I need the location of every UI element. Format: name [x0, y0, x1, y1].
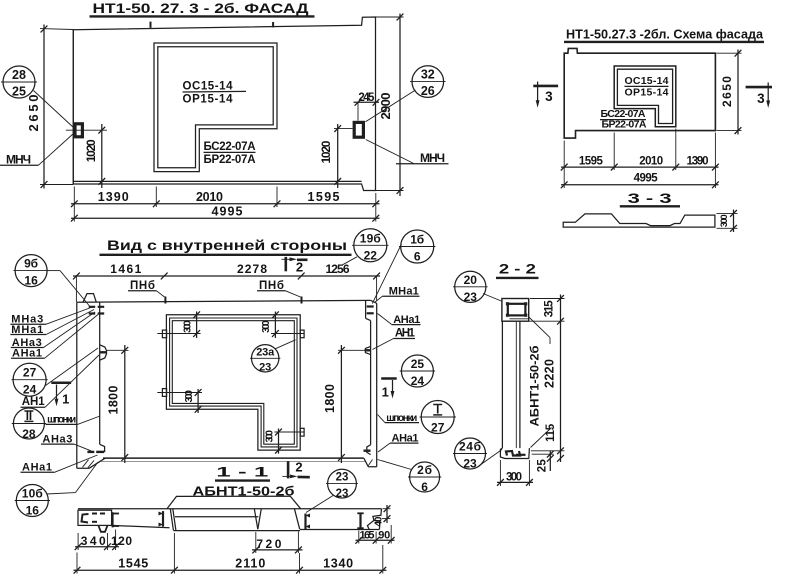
- svg-text:1: 1: [62, 392, 69, 407]
- svg-text:23: 23: [259, 362, 271, 374]
- svg-text:1020: 1020: [319, 140, 333, 163]
- svg-text:115: 115: [545, 423, 557, 442]
- svg-text:720: 720: [256, 537, 281, 551]
- svg-text:23: 23: [464, 290, 478, 304]
- svg-text:1 - 1: 1 - 1: [216, 465, 269, 480]
- svg-text:БР22-07А: БР22-07А: [204, 154, 256, 166]
- svg-text:20: 20: [464, 273, 478, 287]
- svg-text:1340: 1340: [323, 557, 353, 571]
- svg-text:16: 16: [26, 504, 40, 518]
- svg-text:24: 24: [23, 383, 37, 397]
- svg-text:2: 2: [295, 460, 302, 475]
- svg-text:1545: 1545: [118, 557, 148, 571]
- svg-text:300: 300: [184, 390, 195, 403]
- svg-text:2010: 2010: [196, 190, 223, 204]
- svg-text:1б: 1б: [410, 233, 424, 247]
- svg-text:4995: 4995: [634, 173, 659, 185]
- svg-text:23: 23: [463, 457, 477, 471]
- svg-text:АН1: АН1: [22, 396, 46, 408]
- svg-text:АБНТ1-50-2б: АБНТ1-50-2б: [530, 346, 542, 427]
- svg-text:БС22-07А: БС22-07А: [204, 141, 256, 153]
- svg-text:2 - 2: 2 - 2: [499, 262, 536, 277]
- svg-text:25: 25: [411, 357, 425, 371]
- svg-text:2010: 2010: [639, 156, 663, 168]
- svg-text:2278: 2278: [237, 262, 267, 276]
- svg-text:6: 6: [414, 250, 421, 264]
- svg-text:24: 24: [411, 374, 425, 388]
- svg-text:300: 300: [719, 214, 730, 227]
- svg-text:3: 3: [545, 89, 553, 104]
- svg-text:22: 22: [364, 248, 378, 262]
- svg-text:165: 165: [360, 530, 375, 542]
- svg-text:40: 40: [373, 516, 384, 526]
- svg-text:3 - 3: 3 - 3: [628, 190, 672, 206]
- svg-text:9б: 9б: [24, 257, 38, 271]
- svg-text:2650: 2650: [26, 95, 41, 132]
- svg-text:1256: 1256: [326, 262, 350, 276]
- svg-text:25: 25: [12, 85, 26, 99]
- svg-text:1390: 1390: [98, 190, 129, 204]
- svg-text:28: 28: [22, 427, 36, 441]
- svg-text:1390: 1390: [687, 156, 709, 168]
- svg-text:ОС15-14: ОС15-14: [625, 75, 669, 87]
- svg-text:1595: 1595: [579, 156, 604, 168]
- svg-text:4995: 4995: [212, 205, 243, 219]
- svg-text:23: 23: [336, 488, 349, 500]
- svg-text:300: 300: [183, 320, 194, 333]
- svg-text:16: 16: [24, 274, 38, 288]
- svg-text:БР22-07А: БР22-07А: [602, 119, 647, 131]
- svg-text:19б: 19б: [360, 231, 381, 245]
- svg-text:2: 2: [296, 259, 303, 274]
- svg-text:ОР15-14: ОР15-14: [183, 94, 234, 106]
- svg-text:НТ1-50. 27. 3 - 2б. ФАСАД: НТ1-50. 27. 3 - 2б. ФАСАД: [93, 0, 309, 16]
- svg-text:27: 27: [431, 420, 445, 434]
- svg-text:ОС15-14: ОС15-14: [183, 81, 234, 93]
- svg-text:1800: 1800: [323, 384, 337, 413]
- svg-text:25: 25: [537, 459, 549, 473]
- svg-text:1020: 1020: [84, 139, 98, 162]
- svg-text:3: 3: [757, 91, 765, 106]
- svg-text:26: 26: [421, 84, 435, 98]
- svg-text:90: 90: [378, 530, 390, 542]
- svg-text:32: 32: [421, 68, 435, 82]
- svg-text:300: 300: [264, 430, 275, 443]
- svg-text:2220: 2220: [543, 359, 557, 388]
- svg-text:27: 27: [23, 366, 37, 380]
- svg-text:1461: 1461: [110, 262, 141, 276]
- svg-text:1800: 1800: [107, 385, 121, 414]
- svg-text:НТ1-50.27.3 -2бл. Схема фасада: НТ1-50.27.3 -2бл. Схема фасада: [566, 27, 764, 42]
- svg-text:340: 340: [81, 534, 106, 548]
- svg-text:МНЧ: МНЧ: [6, 152, 31, 166]
- svg-text:Вид с внутренней стороны: Вид с внутренней стороны: [107, 237, 347, 253]
- svg-text:ОР15-14: ОР15-14: [625, 87, 669, 99]
- svg-text:120: 120: [111, 534, 132, 548]
- svg-text:2110: 2110: [235, 557, 265, 571]
- svg-text:23: 23: [336, 472, 349, 484]
- svg-text:315: 315: [543, 300, 555, 318]
- svg-text:23а: 23а: [256, 347, 275, 359]
- svg-text:1595: 1595: [308, 190, 340, 204]
- svg-text:6: 6: [421, 480, 428, 494]
- svg-text:28: 28: [12, 68, 26, 82]
- svg-text:МНЧ: МНЧ: [420, 151, 445, 165]
- svg-text:2б: 2б: [417, 463, 432, 477]
- svg-text:10б: 10б: [22, 487, 43, 501]
- svg-text:1: 1: [382, 385, 389, 400]
- svg-text:300: 300: [261, 320, 272, 333]
- svg-text:2650: 2650: [720, 76, 734, 107]
- svg-text:24б: 24б: [459, 440, 481, 454]
- svg-text:300: 300: [506, 472, 522, 484]
